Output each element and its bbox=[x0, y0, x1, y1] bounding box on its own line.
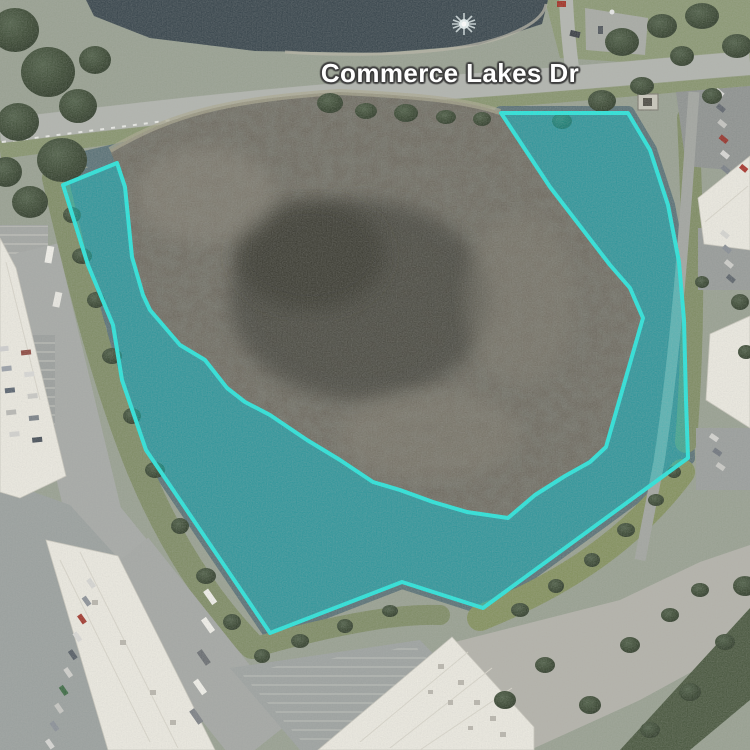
imagery-grain bbox=[0, 0, 750, 750]
satellite-imagery bbox=[0, 0, 750, 750]
satellite-map-canvas[interactable]: Commerce Lakes Dr bbox=[0, 0, 750, 750]
